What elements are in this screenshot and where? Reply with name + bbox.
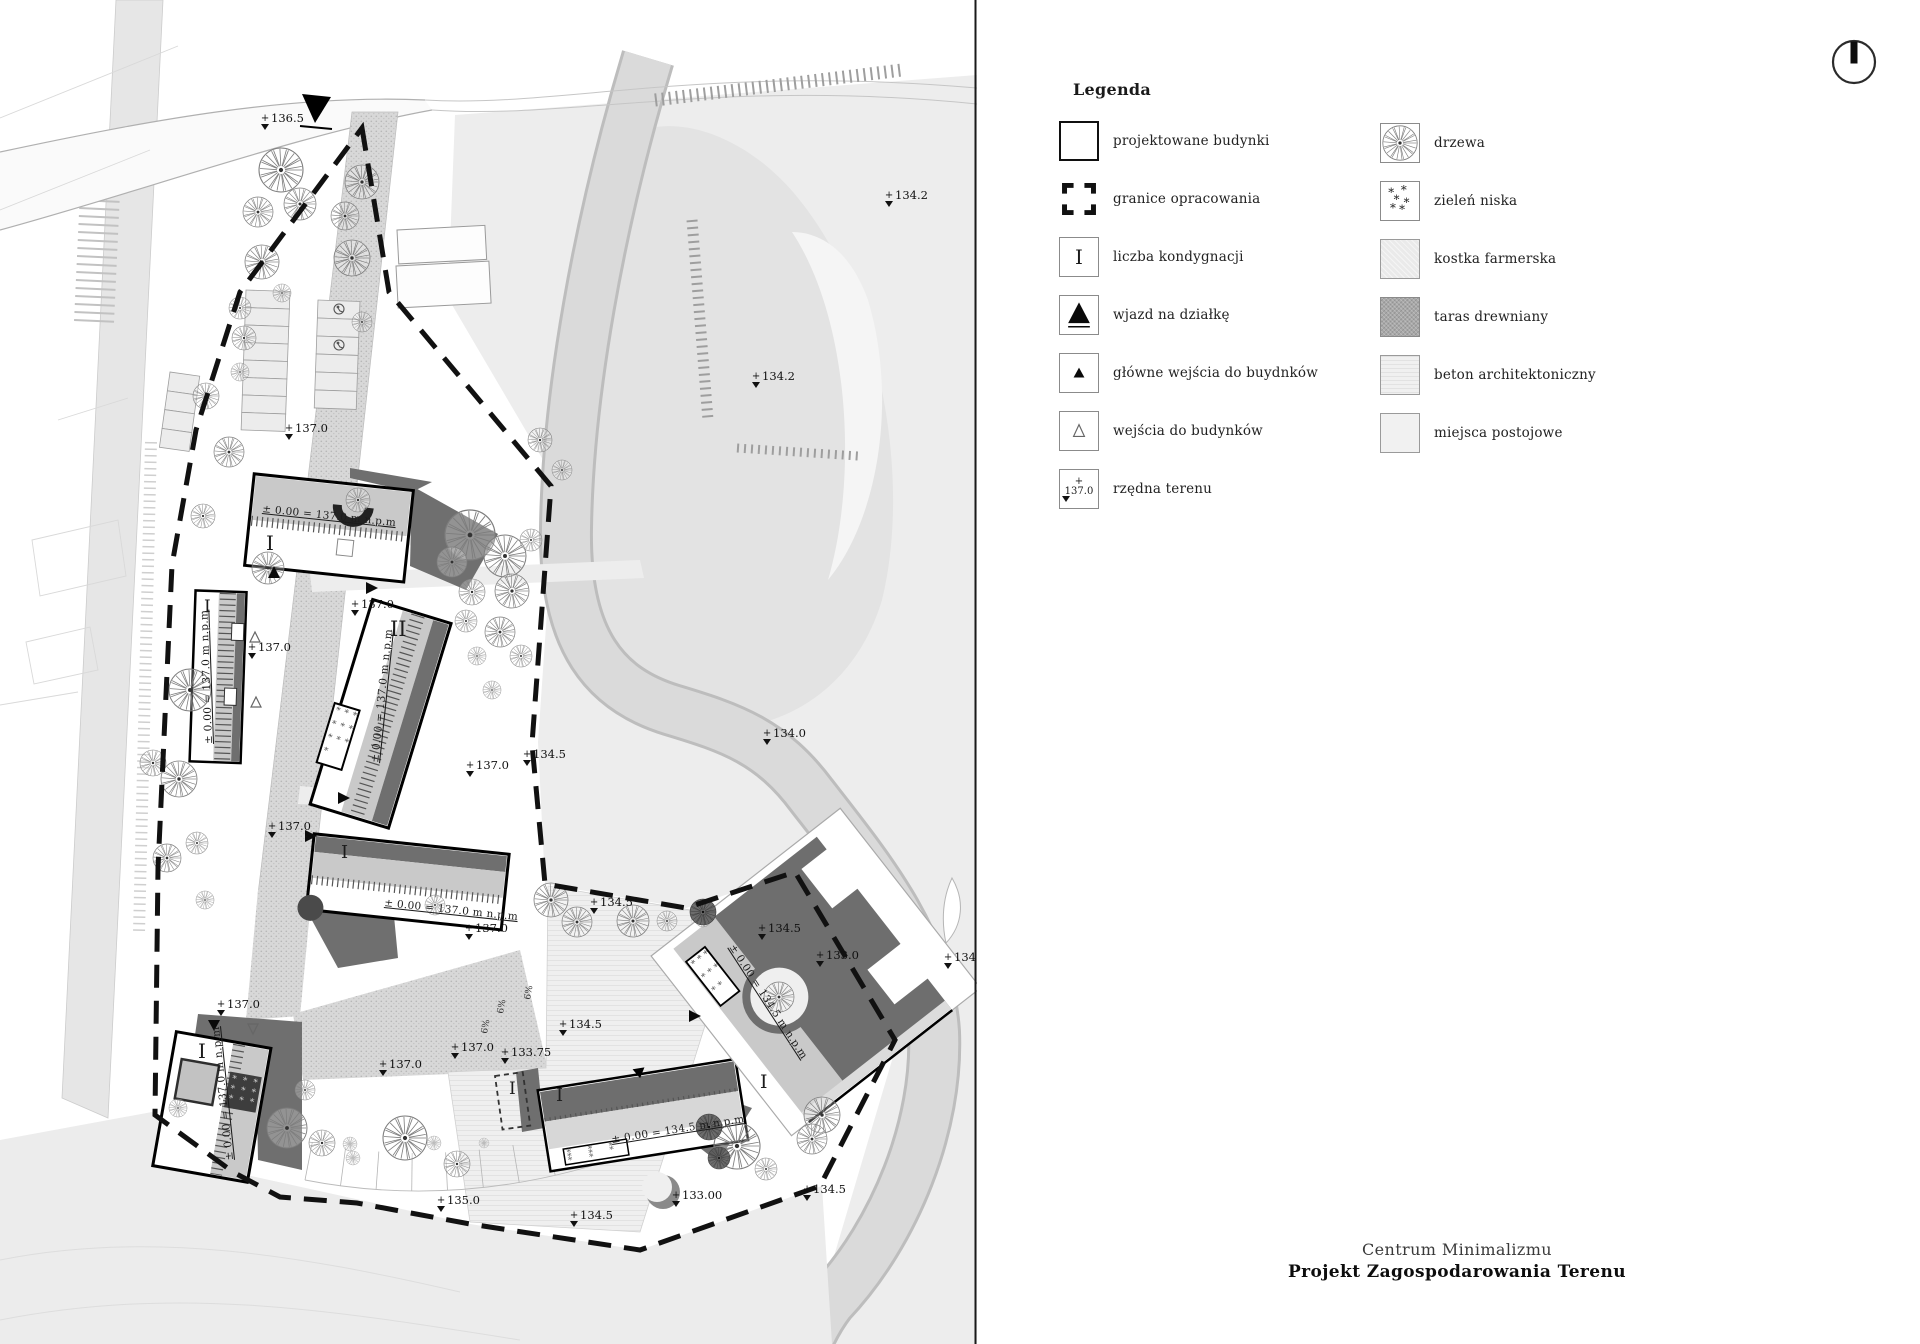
legend-item-liczba-kondygnacji: Iliczba kondygnacji bbox=[1059, 237, 1318, 277]
svg-text:134.5: 134.5 bbox=[580, 1208, 613, 1222]
legend-item-projektowane-budynki: projektowane budynki bbox=[1059, 121, 1318, 161]
tree-icon bbox=[191, 504, 215, 528]
legend-label: granice opracowania bbox=[1113, 191, 1260, 207]
zielen-niska-swatch: ****** bbox=[1380, 181, 1420, 221]
tree-icon bbox=[383, 1116, 427, 1160]
legend-item-wejscia-do-budynkow: wejścia do budynków bbox=[1059, 411, 1318, 451]
svg-text:*: * bbox=[1390, 201, 1396, 215]
kostka-farmerska-swatch bbox=[1380, 239, 1420, 279]
svg-text:+: + bbox=[885, 190, 893, 201]
liczba-kondygnacji-swatch: I bbox=[1059, 237, 1099, 277]
north-arrow-icon bbox=[1831, 37, 1879, 85]
svg-text:+: + bbox=[763, 728, 771, 739]
svg-text:134.0: 134.0 bbox=[954, 950, 977, 964]
svg-text:137.0: 137.0 bbox=[258, 640, 291, 654]
tree-icon bbox=[484, 535, 526, 577]
svg-text:+: + bbox=[285, 423, 293, 434]
tree-icon bbox=[708, 1147, 730, 1169]
site-plan-map: ***********************************+136.… bbox=[0, 0, 977, 1344]
tree-icon bbox=[562, 907, 592, 937]
granice-opracowania-swatch bbox=[1059, 179, 1099, 219]
storey-count-label: I bbox=[198, 1039, 206, 1063]
legend-label: kostka farmerska bbox=[1434, 251, 1556, 267]
tree-icon bbox=[520, 529, 542, 551]
svg-text:136.5: 136.5 bbox=[271, 111, 304, 125]
project-title: Projekt Zagospodarowania Terenu bbox=[1197, 1262, 1717, 1282]
legend-item-drzewa: drzewa bbox=[1380, 123, 1596, 163]
tree-icon bbox=[267, 1108, 307, 1148]
project-subtitle: Centrum Minimalizmu bbox=[1197, 1240, 1717, 1259]
svg-text:+: + bbox=[437, 1195, 445, 1206]
site-plan-page: ***********************************+136.… bbox=[0, 0, 1920, 1344]
svg-text:+: + bbox=[752, 371, 760, 382]
svg-text:+: + bbox=[944, 952, 952, 963]
tree-icon bbox=[427, 1136, 441, 1150]
tree-icon bbox=[196, 891, 214, 909]
tree-icon bbox=[479, 1138, 489, 1148]
svg-text:+: + bbox=[217, 999, 225, 1010]
projektowane-budynki-swatch bbox=[1059, 121, 1099, 161]
svg-text:+: + bbox=[570, 1210, 578, 1221]
svg-text:133.00: 133.00 bbox=[682, 1188, 722, 1202]
tree-icon bbox=[334, 240, 370, 276]
svg-text:+: + bbox=[248, 642, 256, 653]
svg-text:134.5: 134.5 bbox=[533, 747, 566, 761]
legend-label: główne wejścia do buydnków bbox=[1113, 365, 1318, 381]
legend-item-glowne-wejscia-do-budynkow: główne wejścia do buydnków bbox=[1059, 353, 1318, 393]
svg-text:137.0: 137.0 bbox=[278, 819, 311, 833]
tree-icon bbox=[346, 1151, 360, 1165]
legend: Legenda projektowane budynkigranice opra… bbox=[1073, 80, 1833, 121]
svg-text:+: + bbox=[379, 1059, 387, 1070]
tree-icon bbox=[495, 574, 529, 608]
wjazd-na-dzialke-swatch bbox=[1059, 295, 1099, 335]
svg-text:+: + bbox=[268, 821, 276, 832]
miejsca-postojowe-swatch bbox=[1380, 413, 1420, 453]
legend-item-rzedna-terenu: + 137.0rzędna terenu bbox=[1059, 469, 1318, 509]
tree-icon bbox=[510, 645, 532, 667]
svg-text:+: + bbox=[261, 113, 269, 124]
tree-icon bbox=[657, 911, 677, 931]
legend-label: projektowane budynki bbox=[1113, 133, 1270, 149]
tree-icon bbox=[169, 1099, 187, 1117]
tree-icon bbox=[483, 681, 501, 699]
legend-title: Legenda bbox=[1073, 80, 1833, 99]
legend-item-wjazd-na-dzialke: wjazd na działkę bbox=[1059, 295, 1318, 335]
svg-text:134.0: 134.0 bbox=[773, 726, 806, 740]
svg-text:+: + bbox=[816, 950, 824, 961]
tree-icon bbox=[346, 488, 370, 512]
tree-icon bbox=[252, 552, 284, 584]
taras-drewniany-swatch bbox=[1380, 297, 1420, 337]
wejscia-do-budynkow-swatch bbox=[1059, 411, 1099, 451]
svg-text:+: + bbox=[465, 923, 473, 934]
legend-column-left: projektowane budynkigranice opracowaniaI… bbox=[1059, 121, 1318, 509]
svg-text:134.5: 134.5 bbox=[600, 895, 633, 909]
tree-icon bbox=[797, 1124, 827, 1154]
tree-icon bbox=[259, 148, 303, 192]
svg-text:+: + bbox=[672, 1190, 680, 1201]
svg-text:134.5: 134.5 bbox=[768, 921, 801, 935]
legend-label: wejścia do budynków bbox=[1113, 423, 1263, 439]
legend-label: drzewa bbox=[1434, 135, 1485, 151]
beton-architektoniczny-swatch bbox=[1380, 355, 1420, 395]
legend-label: taras drewniany bbox=[1434, 309, 1548, 325]
storey-count-label: I bbox=[509, 1079, 516, 1099]
svg-text:+: + bbox=[559, 1019, 567, 1030]
legend-item-miejsca-postojowe: miejsca postojowe bbox=[1380, 413, 1596, 453]
svg-text:137.0: 137.0 bbox=[475, 921, 508, 935]
drzewa-swatch bbox=[1380, 123, 1420, 163]
tree-icon bbox=[345, 165, 379, 199]
legend-item-taras-drewniany: taras drewniany bbox=[1380, 297, 1596, 337]
storey-count-label: I bbox=[341, 842, 348, 863]
svg-text:133.0: 133.0 bbox=[826, 948, 859, 962]
legend-item-kostka-farmerska: kostka farmerska bbox=[1380, 239, 1596, 279]
legend-label: miejsca postojowe bbox=[1434, 425, 1563, 441]
svg-text:134.5: 134.5 bbox=[569, 1017, 602, 1031]
tree-icon bbox=[528, 428, 552, 452]
svg-text:+: + bbox=[466, 760, 474, 771]
svg-text:+: + bbox=[501, 1047, 509, 1058]
tree-icon bbox=[295, 1080, 315, 1100]
svg-text:134.2: 134.2 bbox=[762, 369, 795, 383]
legend-label: liczba kondygnacji bbox=[1113, 249, 1244, 265]
tree-icon bbox=[273, 284, 291, 302]
legend-label: beton architektoniczny bbox=[1434, 367, 1596, 383]
tree-icon bbox=[455, 610, 477, 632]
tree-icon bbox=[352, 312, 372, 332]
tree-icon bbox=[309, 1130, 335, 1156]
svg-text:+: + bbox=[451, 1042, 459, 1053]
svg-text:133.75: 133.75 bbox=[511, 1045, 551, 1059]
tree-icon bbox=[617, 905, 649, 937]
svg-text:134.2: 134.2 bbox=[895, 188, 928, 202]
svg-text:137.0: 137.0 bbox=[295, 421, 328, 435]
tree-icon bbox=[444, 1151, 470, 1177]
storey-count-label: I bbox=[760, 1071, 768, 1093]
svg-text:134.5: 134.5 bbox=[813, 1182, 846, 1196]
tree-icon bbox=[755, 1158, 777, 1180]
svg-text:+: + bbox=[523, 749, 531, 760]
legend-item-granice-opracowania: granice opracowania bbox=[1059, 179, 1318, 219]
tree-icon bbox=[552, 460, 572, 480]
tree-icon bbox=[485, 617, 515, 647]
legend-panel: Legenda projektowane budynkigranice opra… bbox=[977, 0, 1920, 1344]
tree-icon bbox=[186, 832, 208, 854]
tree-icon bbox=[459, 579, 485, 605]
storey-count-label: I bbox=[266, 531, 274, 555]
svg-text:137.0: 137.0 bbox=[461, 1040, 494, 1054]
svg-text:137.0: 137.0 bbox=[389, 1057, 422, 1071]
tree-icon bbox=[232, 326, 256, 350]
tree-icon bbox=[468, 647, 486, 665]
svg-text:137.0: 137.0 bbox=[227, 997, 260, 1011]
storey-count-label: I bbox=[556, 1085, 563, 1106]
legend-item-beton-architektoniczny: beton architektoniczny bbox=[1380, 355, 1596, 395]
tree-icon bbox=[331, 202, 359, 230]
svg-text:137.0: 137.0 bbox=[361, 597, 394, 611]
tree-icon bbox=[214, 437, 244, 467]
title-block: Centrum Minimalizmu Projekt Zagospodarow… bbox=[1197, 1240, 1717, 1282]
legend-label: wjazd na działkę bbox=[1113, 307, 1230, 323]
svg-text:+: + bbox=[590, 897, 598, 908]
svg-text:135.0: 135.0 bbox=[447, 1193, 480, 1207]
tree-icon bbox=[231, 363, 249, 381]
tree-icon bbox=[343, 1137, 357, 1151]
svg-text:*: * bbox=[1399, 203, 1405, 217]
tree-icon bbox=[243, 197, 273, 227]
rzedna-terenu-swatch: + 137.0 bbox=[1059, 469, 1099, 509]
legend-item-zielen-niska: ******zieleń niska bbox=[1380, 181, 1596, 221]
svg-text:+: + bbox=[758, 923, 766, 934]
svg-text:+: + bbox=[803, 1184, 811, 1195]
tree-icon bbox=[161, 761, 197, 797]
legend-label: rzędna terenu bbox=[1113, 481, 1212, 497]
glowne-wejscia-do-budynkow-swatch bbox=[1059, 353, 1099, 393]
tree-icon bbox=[437, 547, 467, 577]
legend-column-right: drzewa******zieleń niskakostka farmerska… bbox=[1380, 123, 1596, 453]
legend-label: zieleń niska bbox=[1434, 193, 1517, 209]
svg-text:+: + bbox=[351, 599, 359, 610]
svg-text:137.0: 137.0 bbox=[476, 758, 509, 772]
